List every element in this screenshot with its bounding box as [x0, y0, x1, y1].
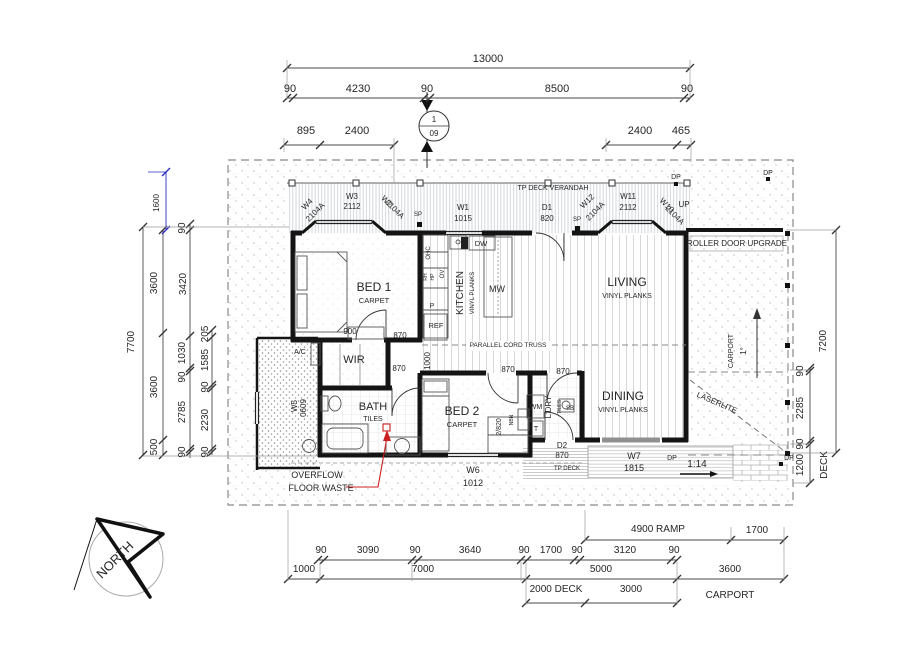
- window-w5: W5: [290, 399, 299, 412]
- window-w3: W3: [346, 192, 359, 201]
- window-w7-size: 1815: [624, 463, 644, 473]
- dim-bot-5000: 5000: [590, 564, 613, 575]
- floor-plan-sheet: 1 09 130009042309085009089524002400465TP…: [0, 0, 919, 650]
- window-w11: W11: [620, 192, 636, 201]
- dim-bot-3000: 3000: [620, 584, 643, 595]
- post-sp-2: SP: [573, 217, 581, 223]
- room-ldry: L'DRY: [544, 395, 553, 418]
- sliding-door-w7: [602, 438, 660, 443]
- fixture-rh: RH: [423, 273, 429, 281]
- dim-bot-3600: 3600: [719, 564, 742, 575]
- dim-895: 895: [297, 125, 315, 137]
- note-up: UP: [678, 200, 689, 209]
- dim-left-500: 500: [149, 438, 160, 455]
- dim-90-a: 90: [284, 83, 296, 95]
- fixture-mw: MW: [489, 284, 505, 294]
- marker-sheet: 09: [430, 129, 439, 138]
- fixture-wm: WM: [530, 404, 543, 411]
- dim-overall-13000: 13000: [473, 53, 504, 65]
- room-bed2-finish: CARPET: [447, 420, 478, 429]
- window-w1: W1: [457, 203, 470, 212]
- fixture-ac: A/C: [294, 349, 306, 356]
- dim-bot-90-d: 90: [571, 545, 583, 556]
- dim-bot-1700: 1700: [540, 545, 563, 556]
- note-roller-door: ROLLER DOOR UPGRADE: [687, 239, 787, 248]
- dim-4230: 4230: [346, 83, 370, 95]
- dim-2400-right: 2400: [628, 125, 652, 137]
- dim-left-90-a: 90: [177, 222, 188, 234]
- dim-left-7700: 7700: [126, 330, 137, 353]
- downpipe-top: DP: [671, 174, 681, 181]
- dim-465: 465: [672, 125, 690, 137]
- room-bed1-finish: CARPET: [359, 296, 390, 305]
- dim-left-90-d: 90: [200, 381, 211, 393]
- window-w7: W7: [627, 451, 641, 461]
- dim-left-90-c: 90: [177, 446, 188, 458]
- courtyard-gravel: [259, 340, 318, 468]
- marker-number: 1: [432, 115, 437, 124]
- post-sp-1: SP: [414, 212, 422, 218]
- note-overflow-2: FLOOR WASTE: [288, 483, 353, 493]
- window-w5-size: 0609: [299, 399, 308, 417]
- window-w6-size: 1012: [463, 478, 483, 488]
- dim-right-2285: 2285: [795, 396, 806, 419]
- fixture-pantry: P: [430, 303, 435, 310]
- dim-left-90-e: 90: [200, 446, 211, 458]
- room-kitchen-finish: VINYL PLANKS: [470, 272, 476, 314]
- dim-bot-3640: 3640: [459, 545, 482, 556]
- door-d1: D1: [542, 203, 553, 212]
- fixture-dw: DW: [475, 239, 488, 248]
- dim-bot-90-a: 90: [315, 545, 327, 556]
- dim-door-870-ldry: 870: [556, 367, 570, 376]
- dim-90-b: 90: [421, 83, 433, 95]
- verandah-title: TP DECK VERANDAH: [517, 185, 588, 192]
- room-dining: DINING: [602, 389, 644, 403]
- downpipe-se: DP: [784, 455, 794, 462]
- room-bath-finish: TILES: [363, 416, 383, 423]
- dim-bot-7000: 7000: [412, 564, 435, 575]
- dim-right-90-b: 90: [795, 438, 806, 450]
- downpipe-deck: DP: [667, 455, 677, 462]
- dim-2400-left: 2400: [345, 125, 369, 137]
- dim-ramp-1700: 1700: [746, 525, 769, 536]
- dim-right-7200: 7200: [818, 329, 829, 352]
- dim-bot-90-c: 90: [518, 545, 530, 556]
- dim-bot-90-e: 90: [668, 545, 680, 556]
- room-kitchen: KITCHEN: [455, 271, 466, 315]
- dim-door-870-hall: 870: [392, 364, 406, 373]
- dim-robe-900: 900: [343, 327, 357, 336]
- carport-fall: 1°: [739, 347, 748, 355]
- room-bed1: BED 1: [357, 280, 392, 294]
- room-living-finish: VINYL PLANKS: [602, 293, 652, 300]
- floor-plan-drawing: 1 09 130009042309085009089524002400465TP…: [0, 0, 919, 650]
- fixture-dryer: T: [534, 426, 539, 433]
- fixture-sb: SB: [566, 406, 574, 412]
- fixture-ohc: OHC: [426, 246, 432, 260]
- dim-left-1600: 1600: [152, 194, 161, 212]
- ramp-grade: 1:14: [687, 459, 707, 470]
- window-w11-size: 2112: [619, 203, 637, 212]
- dim-hall-1000: 1000: [423, 352, 432, 370]
- downpipe-topright: DP: [763, 170, 773, 177]
- robe-2-820: 2/820: [496, 418, 503, 436]
- deck-tp: TP DECK: [554, 466, 580, 472]
- dim-left-2230: 2230: [200, 408, 211, 431]
- dim-bot-1000: 1000: [293, 564, 316, 575]
- room-wir: WIR: [343, 354, 364, 366]
- dim-right-1200: 1200: [795, 453, 806, 476]
- dim-door-870-bed1: 870: [393, 331, 407, 340]
- room-ldry-finish: TILES: [557, 399, 563, 414]
- dim-90-c: 90: [681, 83, 693, 95]
- dim-left-3600-b: 3600: [149, 375, 160, 398]
- dim-door-870-bed2: 870: [501, 365, 515, 374]
- carport-vertical: CARPORT: [728, 333, 735, 368]
- dim-left-90-b: 90: [177, 371, 188, 383]
- dim-left-2785: 2785: [177, 400, 188, 423]
- dim-ramp-4900: 4900 RAMP: [631, 524, 685, 535]
- room-living: LIVING: [607, 275, 646, 289]
- dim-8500: 8500: [545, 83, 569, 95]
- fixture-ref: REF: [429, 321, 444, 330]
- window-w1-size: 1015: [454, 214, 472, 223]
- window-w3-size: 2112: [343, 202, 361, 211]
- dim-bot-2000-deck: 2000 DECK: [530, 584, 583, 595]
- dim-right-90-a: 90: [795, 365, 806, 377]
- dim-left-3420: 3420: [178, 272, 189, 295]
- dim-bot-3090: 3090: [357, 545, 380, 556]
- door-d2-size: 870: [555, 451, 569, 460]
- note-overflow-1: OVERFLOW: [291, 470, 343, 480]
- label-carport-bottom: CARPORT: [706, 590, 755, 601]
- dim-bot-3120: 3120: [614, 545, 637, 556]
- room-bath: BATH: [359, 401, 388, 413]
- fixture-ov: OV: [440, 270, 446, 279]
- door-d1-size: 820: [540, 214, 554, 223]
- room-dining-finish: VINYL PLANKS: [598, 407, 648, 414]
- window-w6: W6: [466, 465, 480, 475]
- door-d2: D2: [557, 441, 568, 450]
- dim-left-1030: 1030: [177, 341, 188, 364]
- room-bed2: BED 2: [445, 404, 480, 418]
- dim-left-1585: 1585: [200, 348, 211, 371]
- label-deck: DECK: [819, 451, 830, 479]
- dim-left-205: 205: [200, 325, 211, 342]
- fixture-nbn: NBN: [509, 414, 515, 425]
- dim-left-3600-a: 3600: [149, 271, 160, 294]
- fixture-hp: HP: [430, 273, 436, 281]
- note-truss: PARALLEL CORD TRUSS: [470, 342, 547, 349]
- dim-bot-90-b: 90: [409, 545, 421, 556]
